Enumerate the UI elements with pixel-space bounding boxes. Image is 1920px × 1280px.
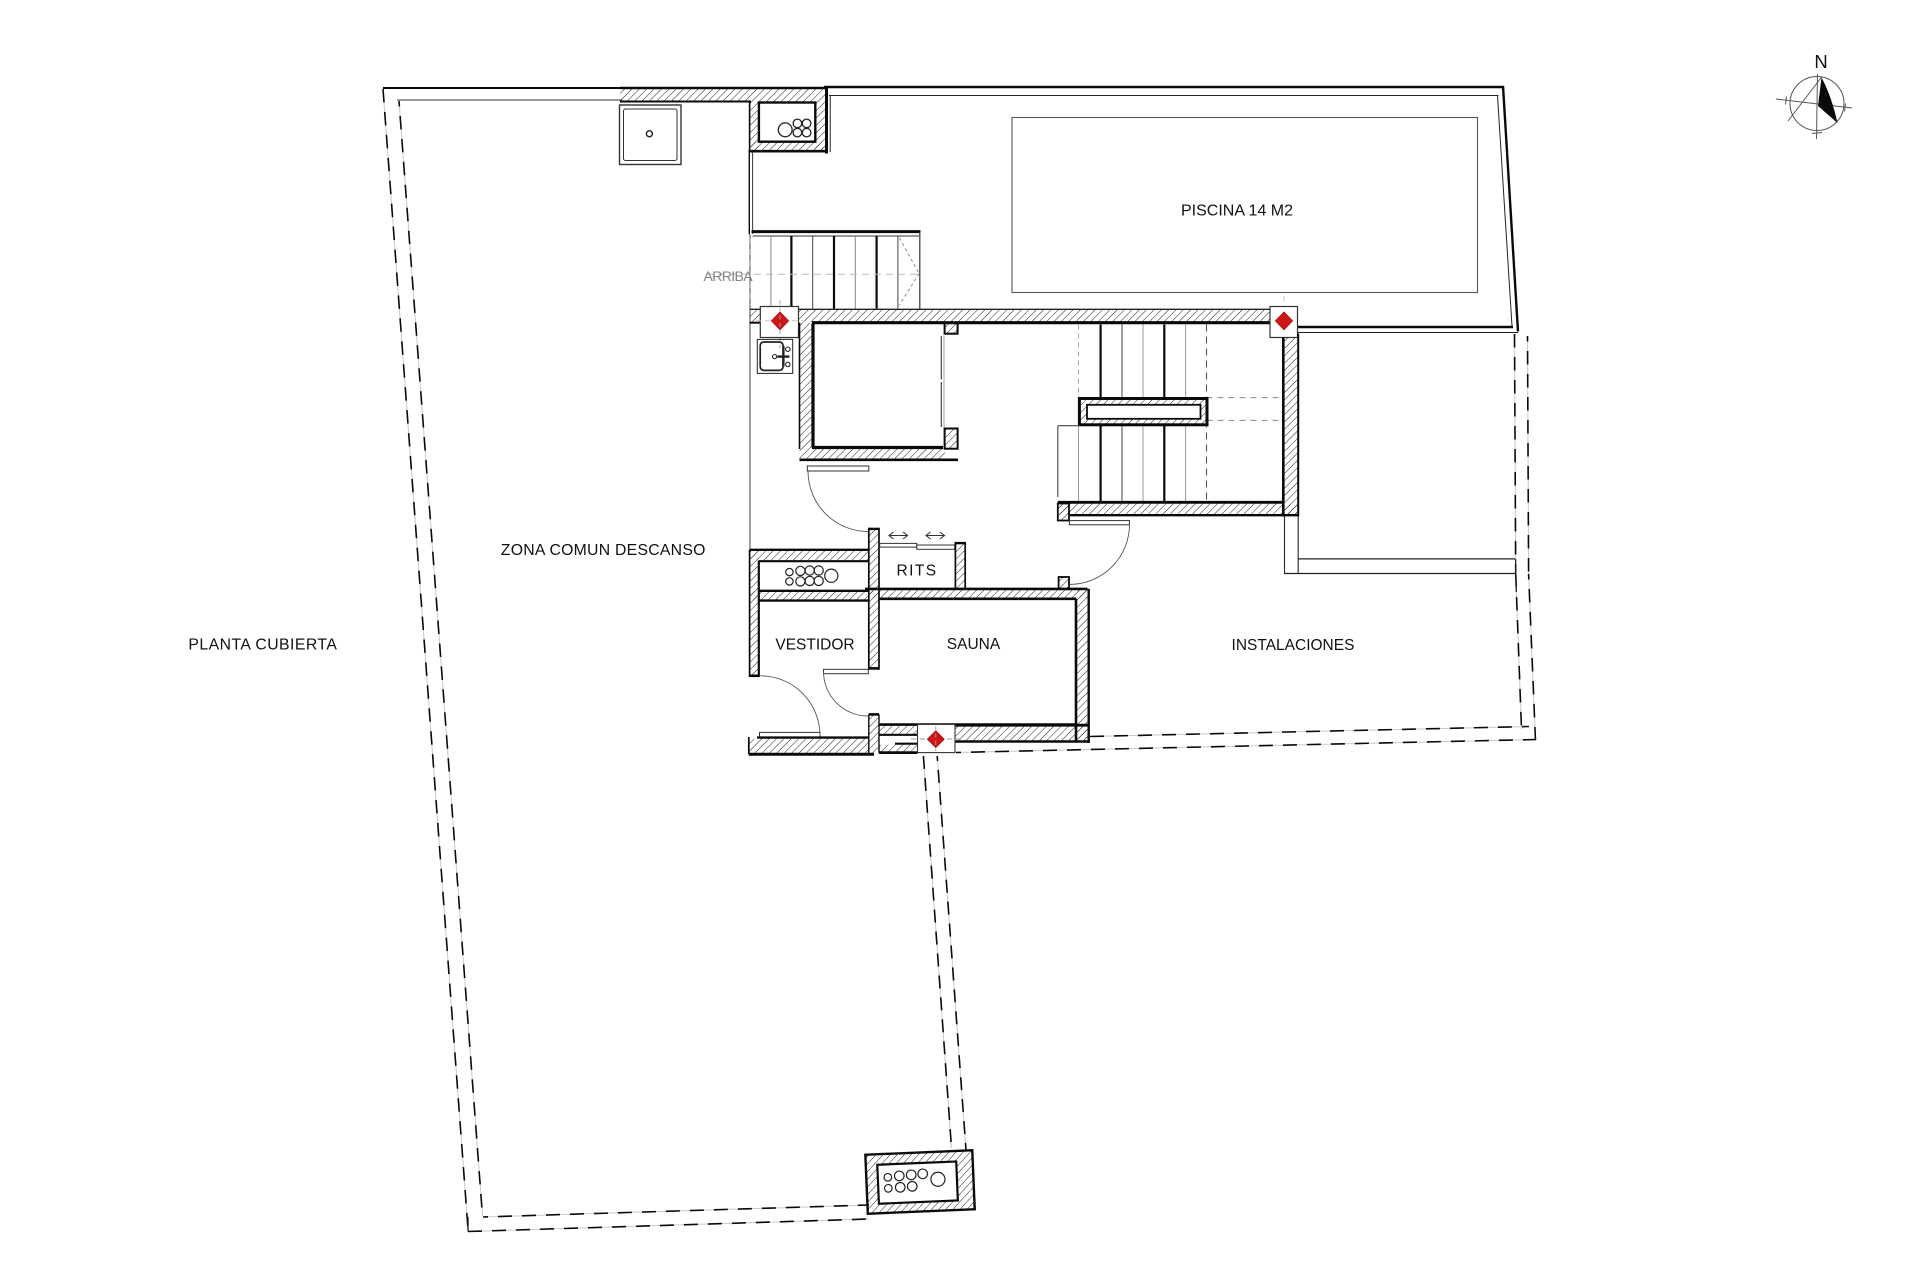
svg-text:N: N bbox=[1814, 51, 1827, 72]
svg-text:PLANTA CUBIERTA: PLANTA CUBIERTA bbox=[188, 636, 337, 653]
svg-text:ARRIBA: ARRIBA bbox=[704, 268, 754, 284]
svg-text:INSTALACIONES: INSTALACIONES bbox=[1232, 637, 1355, 654]
svg-text:PISCINA 14 M2: PISCINA 14 M2 bbox=[1181, 203, 1293, 220]
svg-text:SAUNA: SAUNA bbox=[947, 636, 1001, 653]
svg-text:RITS: RITS bbox=[897, 563, 938, 580]
svg-text:VESTIDOR: VESTIDOR bbox=[775, 637, 854, 654]
svg-text:ZONA COMUN DESCANSO: ZONA COMUN DESCANSO bbox=[501, 542, 706, 559]
